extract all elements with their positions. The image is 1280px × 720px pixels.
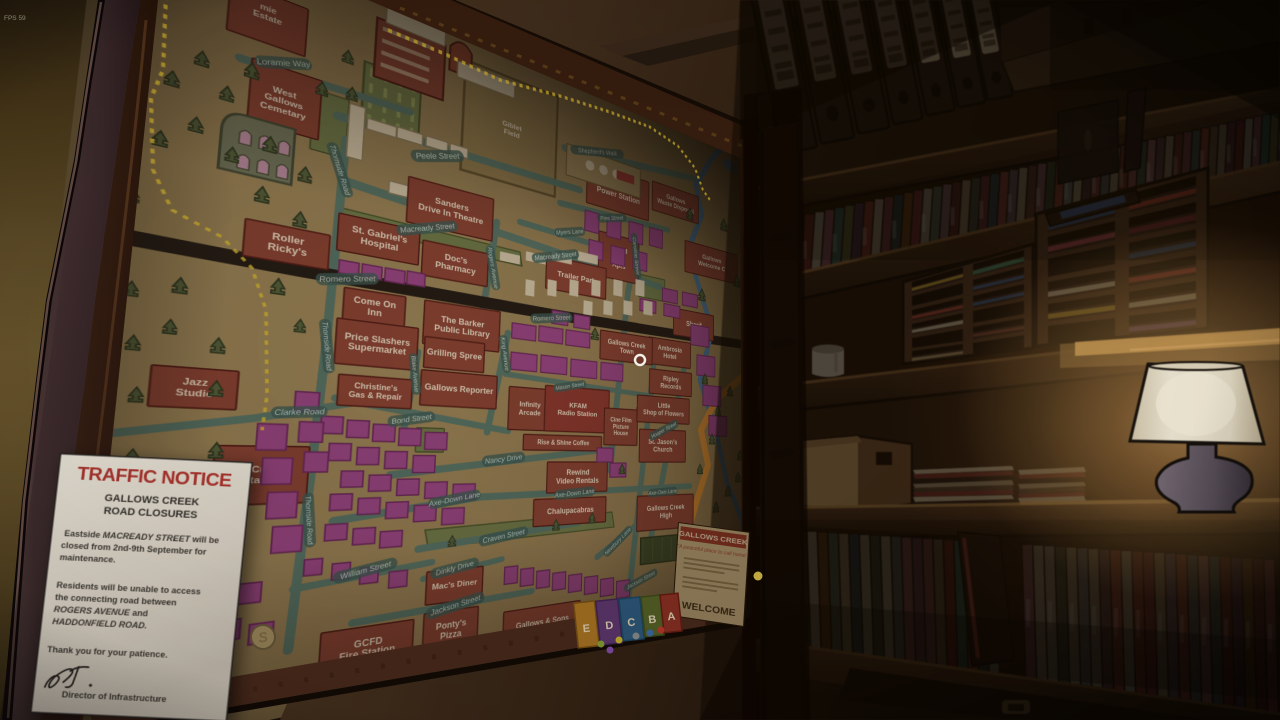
svg-text:FPS 59: FPS 59 (4, 15, 26, 22)
